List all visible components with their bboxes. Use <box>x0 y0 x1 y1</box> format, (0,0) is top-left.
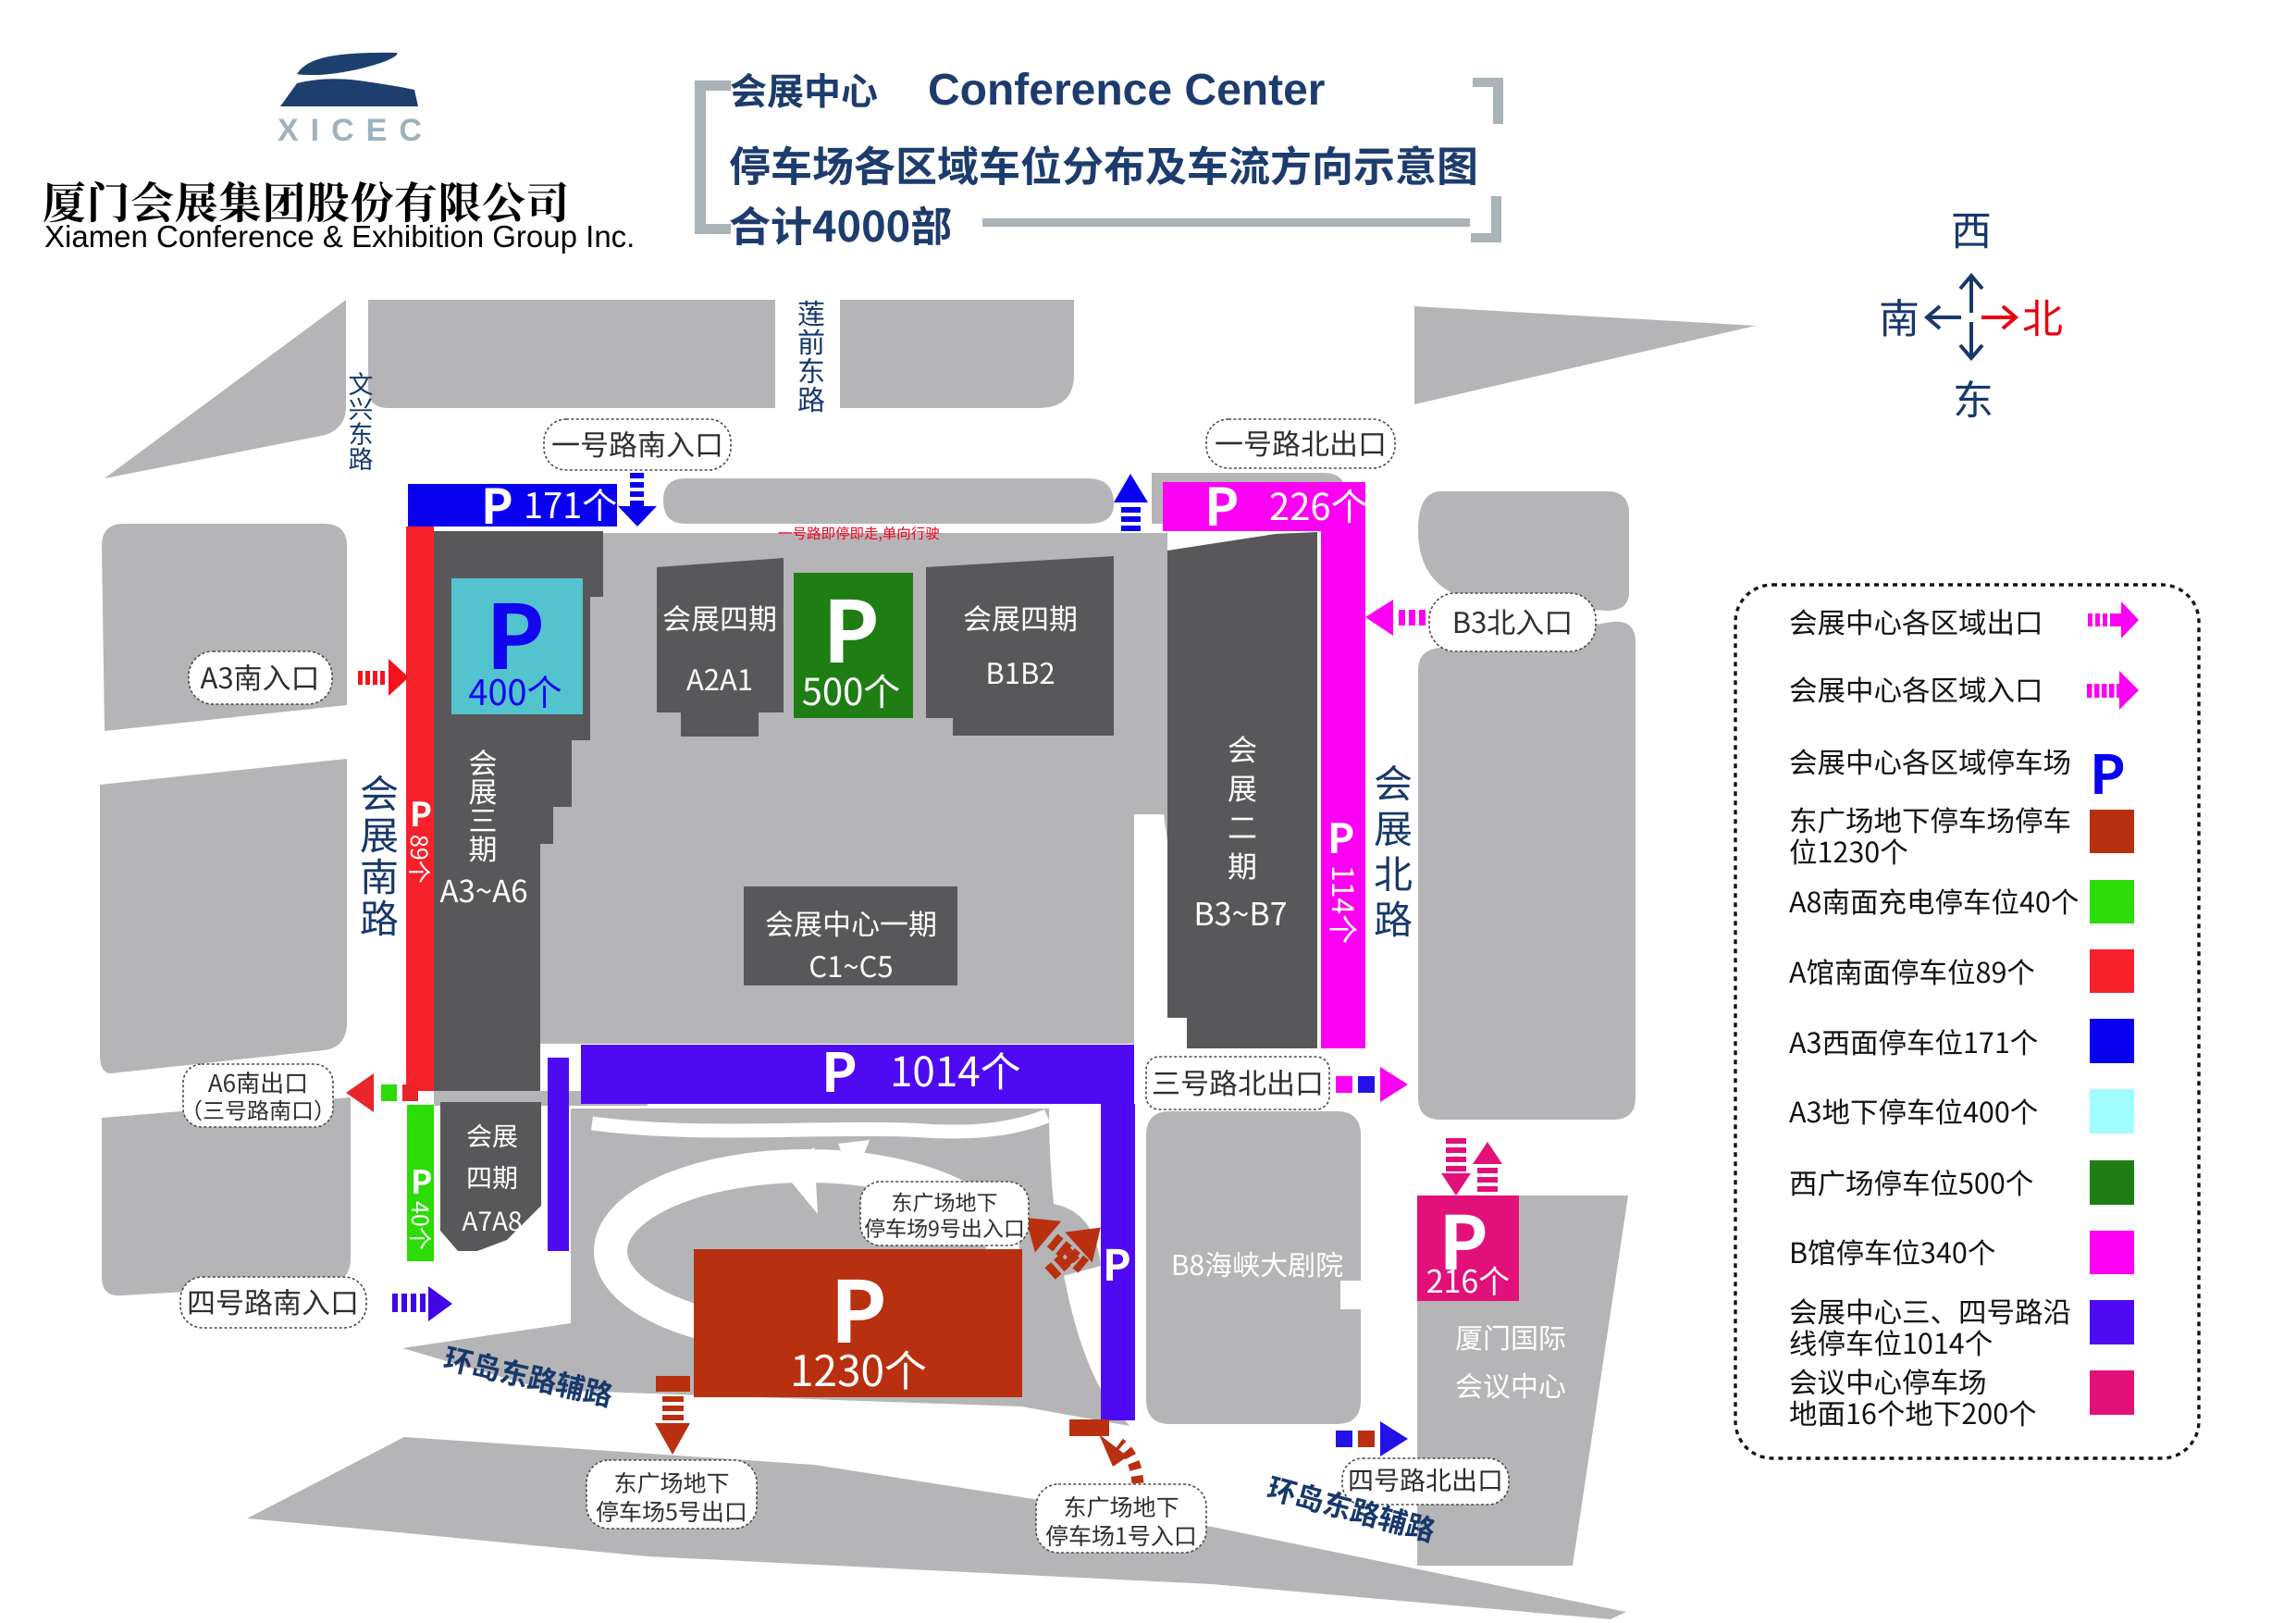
svg-text:A7A8: A7A8 <box>462 1202 522 1239</box>
svg-text:XICEC: XICEC <box>278 113 434 148</box>
svg-text:P: P <box>1327 806 1354 865</box>
svg-text:停车场5号出口: 停车场5号出口 <box>596 1494 747 1528</box>
svg-text:P: P <box>411 1157 432 1204</box>
svg-text:B1B2: B1B2 <box>985 650 1055 692</box>
svg-text:会展四期: 会展四期 <box>963 596 1078 638</box>
svg-text:路: 路 <box>797 378 825 418</box>
svg-text:路: 路 <box>1374 889 1413 946</box>
svg-text:C1~C5: C1~C5 <box>809 944 893 985</box>
svg-text:500个: 500个 <box>802 663 901 716</box>
svg-text:一号路北出口: 一号路北出口 <box>1215 421 1387 463</box>
svg-text:P: P <box>821 1030 858 1108</box>
svg-text:位1230个: 位1230个 <box>1789 830 1908 871</box>
svg-text:一号路即停即走,单向行驶: 一号路即停即走,单向行驶 <box>778 523 940 543</box>
svg-text:三号路北出口: 三号路北出口 <box>1152 1060 1324 1102</box>
svg-text:P: P <box>2090 732 2126 810</box>
svg-text:1014个: 1014个 <box>890 1039 1021 1098</box>
svg-text:会展中心各区域出口: 会展中心各区域出口 <box>1789 601 2043 641</box>
svg-text:40个: 40个 <box>404 1201 438 1250</box>
svg-text:P: P <box>410 788 432 836</box>
svg-text:89个: 89个 <box>403 835 437 884</box>
svg-text:合计4000部: 合计4000部 <box>729 193 952 254</box>
svg-text:二: 二 <box>1228 805 1257 848</box>
svg-text:A3地下停车位400个: A3地下停车位400个 <box>1789 1090 2038 1131</box>
svg-text:B馆停车位340个: B馆停车位340个 <box>1789 1231 1995 1271</box>
svg-text:（三号路南口）: （三号路南口） <box>180 1093 336 1125</box>
svg-text:线停车位1014个: 线停车位1014个 <box>1789 1321 1993 1362</box>
svg-text:B3北入口: B3北入口 <box>1452 600 1574 641</box>
svg-text:B8海峡大剧院: B8海峡大剧院 <box>1171 1243 1343 1283</box>
svg-text:216个: 216个 <box>1426 1257 1511 1302</box>
svg-text:西: 西 <box>1951 198 1992 257</box>
svg-text:会展中心: 会展中心 <box>730 62 878 116</box>
svg-text:400个: 400个 <box>468 664 562 715</box>
svg-text:期: 期 <box>1228 844 1257 886</box>
svg-text:Conference Center: Conference Center <box>928 66 1325 115</box>
svg-text:四号路南入口: 四号路南入口 <box>187 1280 359 1321</box>
svg-text:南: 南 <box>1879 286 1920 345</box>
svg-text:A3~A6: A3~A6 <box>439 867 527 911</box>
svg-text:A3西面停车位171个: A3西面停车位171个 <box>1789 1021 2038 1061</box>
svg-text:北: 北 <box>2022 286 2063 345</box>
svg-text:东: 东 <box>1953 367 1994 427</box>
svg-text:171个: 171个 <box>524 477 617 528</box>
svg-text:四期: 四期 <box>466 1158 518 1196</box>
svg-text:114个: 114个 <box>1323 865 1365 944</box>
svg-text:停车场各区域车位分布及车流方向示意图: 停车场各区域车位分布及车流方向示意图 <box>729 133 1478 193</box>
svg-text:会展: 会展 <box>466 1117 518 1154</box>
svg-text:P: P <box>1204 466 1239 541</box>
svg-text:会: 会 <box>1228 727 1257 770</box>
svg-text:P: P <box>1103 1233 1131 1294</box>
svg-text:A8南面充电停车位40个: A8南面充电停车位40个 <box>1789 880 2079 921</box>
svg-text:西广场停车位500个: 西广场停车位500个 <box>1789 1161 2033 1202</box>
svg-text:期: 期 <box>469 826 498 868</box>
svg-text:Xiamen Conference & Exhibition: Xiamen Conference & Exhibition Group Inc… <box>44 219 635 254</box>
svg-text:展: 展 <box>1228 766 1257 809</box>
svg-text:会展中心各区域入口: 会展中心各区域入口 <box>1789 668 2043 709</box>
svg-text:B3~B7: B3~B7 <box>1193 889 1287 935</box>
svg-text:停车场1号入口: 停车场1号入口 <box>1045 1518 1197 1552</box>
svg-text:A馆南面停车位89个: A馆南面停车位89个 <box>1789 950 2035 991</box>
svg-text:P: P <box>481 468 513 538</box>
svg-text:会展四期: 会展四期 <box>662 596 777 638</box>
svg-text:226个: 226个 <box>1269 477 1368 531</box>
svg-text:1230个: 1230个 <box>790 1338 927 1399</box>
svg-text:路: 路 <box>349 440 374 476</box>
svg-text:会议中心: 会议中心 <box>1455 1364 1566 1405</box>
svg-text:会展中心一期: 会展中心一期 <box>765 901 937 943</box>
svg-text:A2A1: A2A1 <box>686 657 753 699</box>
svg-text:路: 路 <box>360 888 399 945</box>
svg-text:一号路南入口: 一号路南入口 <box>551 422 723 464</box>
svg-text:会展中心各区域停车场: 会展中心各区域停车场 <box>1789 740 2071 781</box>
svg-text:厦门国际: 厦门国际 <box>1455 1316 1566 1357</box>
svg-text:地面16个地下200个: 地面16个地下200个 <box>1789 1392 2037 1432</box>
svg-text:A3南入口: A3南入口 <box>200 655 319 697</box>
svg-text:停车场9号出入口: 停车场9号出入口 <box>864 1211 1025 1243</box>
